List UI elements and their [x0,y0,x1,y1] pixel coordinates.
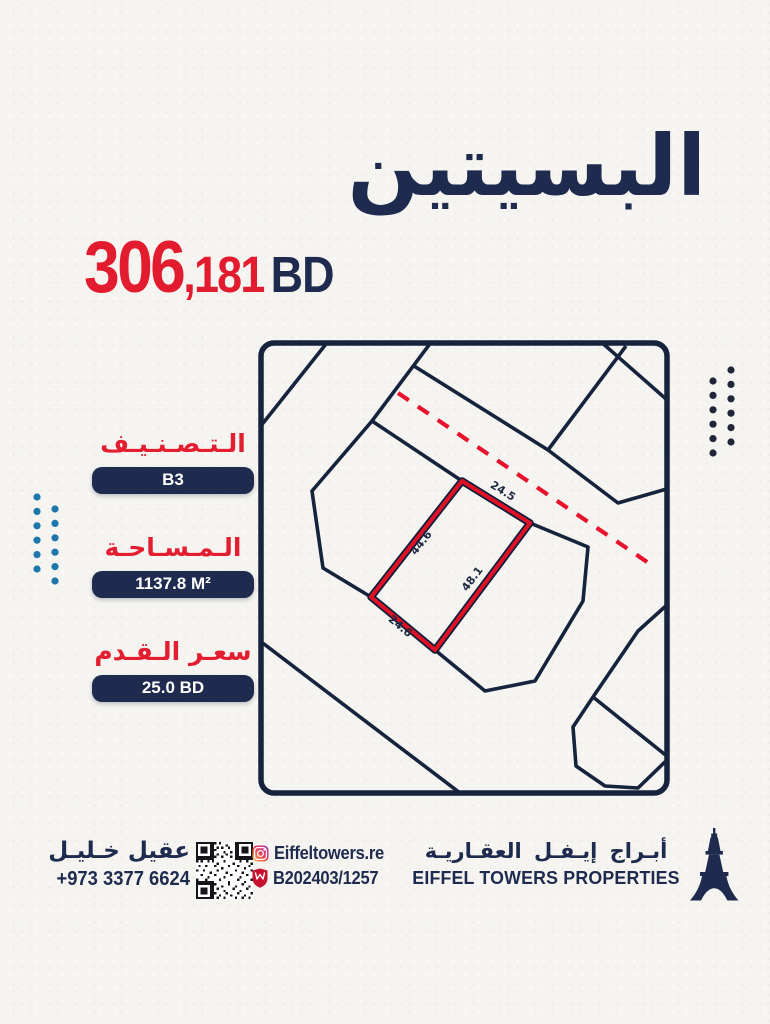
company-name-english: EIFFEL TOWERS PROPERTIES [410,867,683,889]
road-centerline [398,393,656,568]
poster: البسيتين 306,181BD الـتـصـنـيـف B3 الـمـ… [0,0,770,1024]
dimension-label-bottom: 24.6 [386,613,415,641]
price-currency: BD [271,246,334,303]
classification-group: الـتـصـنـيـف B3 [92,430,254,494]
agent-block: عقيل خـليـل +973 3377 6624 [38,838,190,891]
instagram-icon [252,845,269,862]
road-lines [256,341,672,796]
plot-map: 24.5 44.6 48.1 24.6 [256,336,672,798]
social-block: Eiffeltowers.re B202403/1257 [252,842,394,892]
license-shield-icon [252,868,268,888]
area-label: الـمـسـاحـة [92,534,254,562]
price-per-foot-group: سعـر الـقـدم 25.0 BD [92,638,254,702]
price-per-foot-value-pill: 25.0 BD [92,675,254,702]
instagram-handle: Eiffeltowers.re [274,843,384,864]
price: 306,181BD [84,231,334,304]
qr-code [196,842,253,899]
classification-value-pill: B3 [92,467,254,494]
agent-phone: +973 3377 6624 [50,868,190,891]
company-block: أبـراج إيـفـل العقـاريـة EIFFEL TOWERS P… [404,839,688,889]
company-name-arabic: أبـراج إيـفـل العقـاريـة [404,839,688,864]
dots-right-decoration [702,362,740,462]
eiffel-tower-logo [688,827,740,909]
price-per-foot-label: سعـر الـقـدم [92,638,254,666]
dots-left-decoration [28,488,66,588]
area-group: الـمـسـاحـة 1137.8 M² [92,534,254,598]
area-value-pill: 1137.8 M² [92,571,254,598]
classification-label: الـتـصـنـيـف [92,430,254,458]
registration-number: B202403/1257 [273,868,378,889]
page-title: البسيتين [347,118,706,215]
price-main: 306 [84,227,183,308]
price-fraction: ,181 [183,246,263,303]
agent-name: عقيل خـليـل [38,838,190,864]
